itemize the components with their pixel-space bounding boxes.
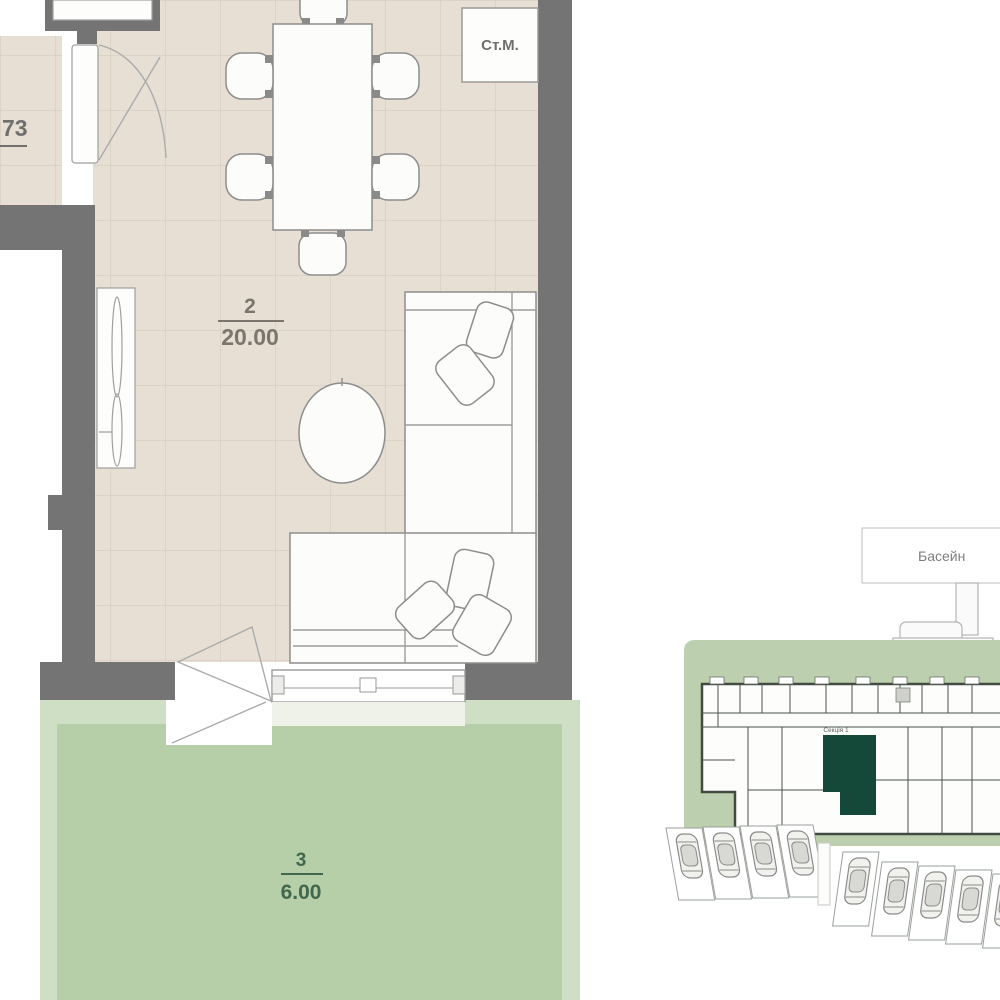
wall-left-notch	[48, 495, 62, 530]
hall-area-text: 73	[2, 115, 28, 141]
terrace-number: 3	[296, 850, 307, 871]
sliding-window	[272, 670, 465, 726]
living-room-number: 2	[244, 295, 256, 318]
wall-right	[538, 0, 572, 706]
pool-label-box: Басейн	[862, 528, 1000, 583]
chair-icon	[299, 230, 346, 275]
walkway-post	[818, 843, 830, 905]
chair-icon	[372, 53, 419, 99]
wall-stub	[77, 30, 97, 44]
section-label: Секція 1	[823, 726, 849, 734]
terrace: 3 6.00	[40, 700, 580, 1000]
terrace-area: 6.00	[281, 881, 322, 904]
wall-bottom-left	[40, 662, 175, 706]
chair-icon	[372, 154, 419, 200]
dining-table	[273, 24, 372, 230]
washing-machine-box: Ст.М.	[462, 8, 538, 82]
radiator-icon	[97, 288, 135, 468]
parking-row-right	[833, 852, 1000, 948]
living-room-area: 20.00	[221, 324, 279, 350]
wall-left-upper	[0, 205, 95, 250]
wall-cabinet	[53, 0, 152, 20]
floorplan-canvas: 73 Ст.М.	[0, 0, 1000, 1000]
chair-icon	[226, 154, 273, 200]
washing-machine-label: Ст.М.	[481, 37, 519, 54]
pool-label: Басейн	[918, 548, 965, 564]
wall-left	[62, 250, 95, 662]
floorplan-drawing: 73 Ст.М.	[0, 0, 1000, 1000]
building-outline: Секція 1	[702, 677, 1000, 834]
chair-icon	[226, 53, 273, 99]
parking-row-left	[666, 825, 826, 900]
wall-bottom-right	[465, 662, 572, 706]
